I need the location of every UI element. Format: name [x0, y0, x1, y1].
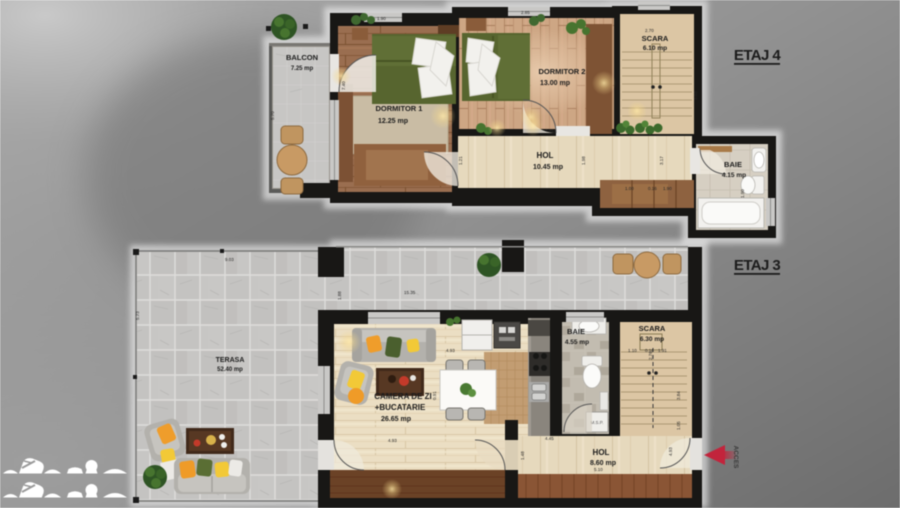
svg-text:1.91: 1.91 [658, 348, 667, 353]
svg-text:BAIE: BAIE [567, 327, 585, 336]
svg-text:TERASA: TERASA [216, 357, 245, 364]
svg-text:7.25 mp: 7.25 mp [291, 66, 314, 72]
svg-text:1.05: 1.05 [676, 421, 681, 430]
svg-text:1.88: 1.88 [337, 291, 342, 300]
svg-text:DORMITOR 1: DORMITOR 1 [376, 104, 423, 113]
svg-text:8.60 mp: 8.60 mp [590, 460, 616, 467]
svg-text:DORMITOR 2: DORMITOR 2 [539, 67, 586, 76]
svg-text:3.03: 3.03 [693, 91, 698, 100]
svg-text:26.65 mp: 26.65 mp [381, 416, 411, 423]
svg-text:6.10 mp: 6.10 mp [643, 45, 667, 52]
svg-text:HOL: HOL [593, 448, 610, 457]
svg-text:2.70: 2.70 [645, 28, 654, 33]
svg-text:1.90: 1.90 [663, 186, 672, 191]
svg-text:1.48: 1.48 [520, 451, 525, 460]
svg-text:1.90: 1.90 [377, 16, 386, 21]
svg-text:1.10: 1.10 [628, 348, 637, 353]
svg-text:SCARA: SCARA [639, 324, 666, 333]
svg-text:4.45: 4.45 [545, 436, 554, 441]
svg-text:4.45: 4.45 [545, 128, 554, 133]
svg-text:1.90: 1.90 [740, 189, 745, 198]
svg-text:4.15 mp: 4.15 mp [722, 172, 746, 179]
svg-text:M.S.P.: M.S.P. [591, 420, 604, 425]
svg-text:6.30 mp: 6.30 mp [640, 336, 664, 343]
svg-text:52.40 mp: 52.40 mp [217, 367, 243, 373]
svg-text:1.98: 1.98 [581, 156, 586, 165]
svg-text:BAIE: BAIE [724, 160, 742, 169]
svg-text:10.45 mp: 10.45 mp [533, 164, 563, 171]
svg-text:ETAJ 4: ETAJ 4 [734, 47, 781, 64]
svg-text:3.17: 3.17 [659, 156, 664, 165]
svg-text:ETAJ 3: ETAJ 3 [734, 257, 780, 274]
svg-text:4.93: 4.93 [668, 447, 673, 456]
svg-text:5.73: 5.73 [135, 311, 140, 320]
svg-text:5.10: 5.10 [594, 467, 603, 472]
svg-text:5.70: 5.70 [270, 111, 275, 120]
svg-text:4.93: 4.93 [388, 438, 397, 443]
svg-text:3.84: 3.84 [676, 391, 681, 400]
svg-text:BALCON: BALCON [286, 53, 318, 62]
svg-text:12.25 mp: 12.25 mp [378, 118, 408, 125]
svg-text:+BUCATARIE: +BUCATARIE [375, 403, 426, 412]
svg-text:1.00: 1.00 [625, 186, 634, 191]
svg-text:15.35: 15.35 [404, 290, 416, 295]
svg-text:4.55 mp: 4.55 mp [565, 339, 589, 346]
svg-text:CAMERA DE ZI: CAMERA DE ZI [374, 392, 431, 401]
svg-text:1.21: 1.21 [458, 156, 463, 165]
svg-text:4.93: 4.93 [446, 348, 455, 353]
svg-text:2.85: 2.85 [521, 10, 530, 15]
svg-text:HOL: HOL [537, 151, 554, 160]
svg-text:0.16: 0.16 [648, 186, 657, 191]
svg-text:7.40: 7.40 [341, 81, 346, 90]
svg-text:13.00 mp: 13.00 mp [540, 80, 570, 87]
svg-text:9.03: 9.03 [225, 257, 234, 262]
svg-text:0.16: 0.16 [645, 348, 654, 353]
svg-text:0.91: 0.91 [432, 391, 437, 400]
svg-text:SCARA: SCARA [642, 34, 669, 43]
svg-text:ACCES: ACCES [732, 446, 739, 469]
